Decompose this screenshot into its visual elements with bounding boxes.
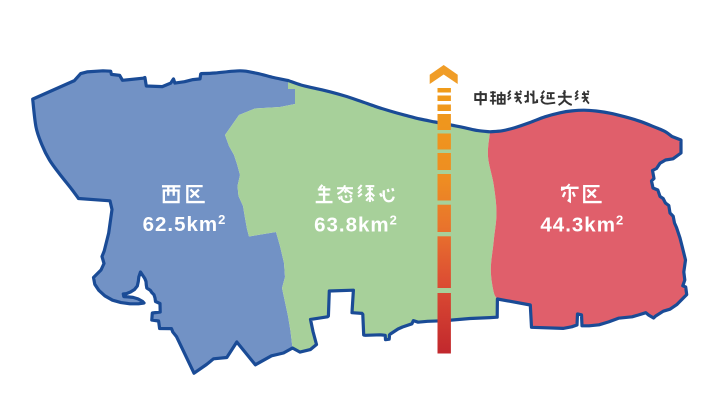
svg-text:62.5km2: 62.5km2 bbox=[143, 212, 227, 236]
svg-text:44.3km2: 44.3km2 bbox=[540, 213, 624, 237]
svg-text:63.8km2: 63.8km2 bbox=[314, 213, 398, 237]
